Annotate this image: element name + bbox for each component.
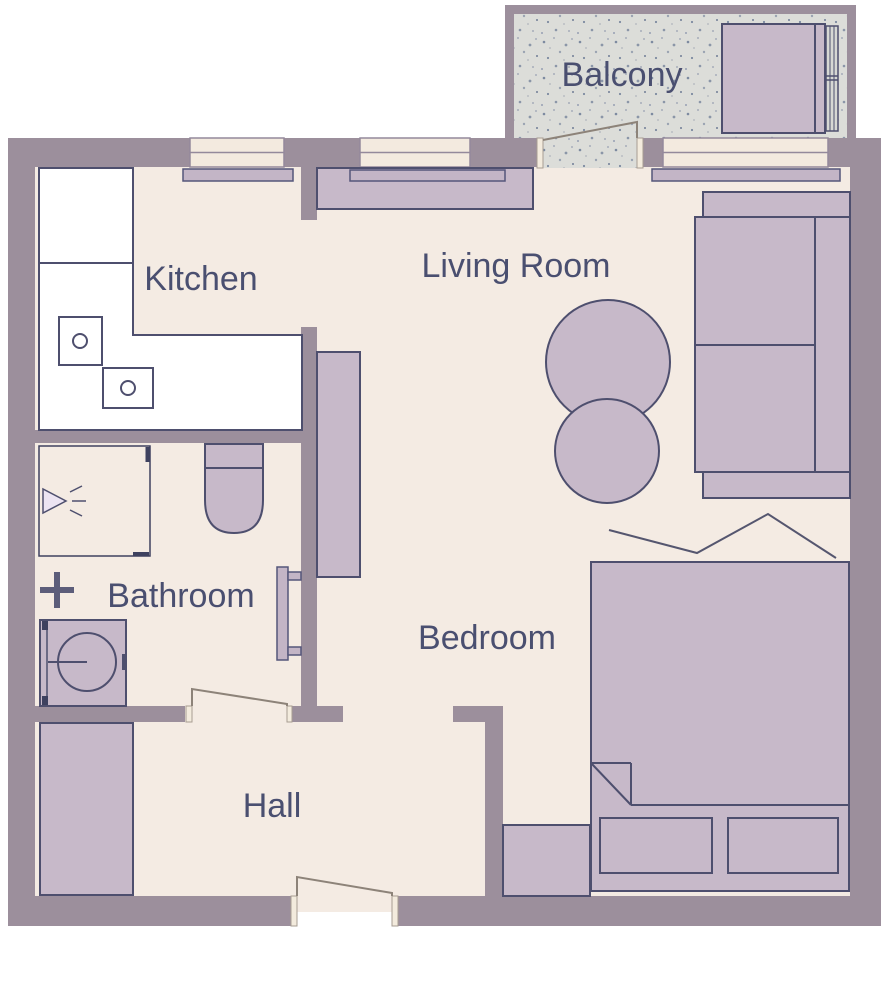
- room-label-bedroom: Bedroom: [418, 619, 556, 657]
- living-room-window-left: [360, 138, 470, 167]
- sofa-armrest-bottom: [703, 472, 850, 498]
- pillow-right: [728, 818, 838, 873]
- wall-kitchen-bathroom-vertical: [301, 327, 317, 722]
- living-room-windowsill-left: [350, 170, 505, 181]
- cooktop-burner-2: [103, 368, 153, 408]
- sofa-seat-2: [695, 345, 815, 472]
- wall-bathroom-hall-left: [35, 706, 185, 722]
- room-label-balcony: Balcony: [562, 56, 683, 94]
- balcony-storage-box: [722, 24, 815, 133]
- living-room-wardrobe: [317, 352, 360, 577]
- balcony-drying-rack: [826, 26, 838, 131]
- washing-machine: [40, 620, 127, 706]
- wall-kitchen-living-stub: [301, 167, 317, 220]
- living-room-window-right: [663, 138, 828, 167]
- balcony-side-panel: [815, 24, 825, 133]
- wall-bathroom-hall-right: [292, 706, 343, 722]
- cooktop-burner-1: [59, 317, 102, 365]
- toilet: [205, 444, 263, 533]
- sofa-backrest: [815, 217, 850, 472]
- double-bed: [591, 562, 849, 891]
- pillow-left: [600, 818, 712, 873]
- wall-hall-bedroom-vertical: [485, 722, 503, 896]
- kitchen-windowsill: [183, 169, 293, 181]
- nightstand: [503, 825, 590, 896]
- floor-plan: Balcony Kitchen Living Room Bathroom Bed…: [0, 0, 889, 1000]
- wall-hall-bedroom-stub: [453, 706, 503, 722]
- room-label-living-room: Living Room: [422, 247, 611, 285]
- room-label-kitchen: Kitchen: [144, 260, 257, 298]
- living-room-windowsill-right: [652, 169, 840, 181]
- sofa-armrest-top: [703, 192, 850, 217]
- room-label-hall: Hall: [243, 787, 302, 825]
- round-table-small: [555, 399, 659, 503]
- sofa-seat-1: [695, 217, 815, 345]
- floor-plan-page: Balcony Kitchen Living Room Bathroom Bed…: [0, 0, 889, 1000]
- room-label-bathroom: Bathroom: [107, 577, 254, 615]
- hall-wardrobe: [40, 723, 133, 895]
- sofa: [695, 192, 850, 498]
- wall-kitchen-bathroom-horizontal: [35, 430, 317, 443]
- kitchen-window: [190, 138, 284, 167]
